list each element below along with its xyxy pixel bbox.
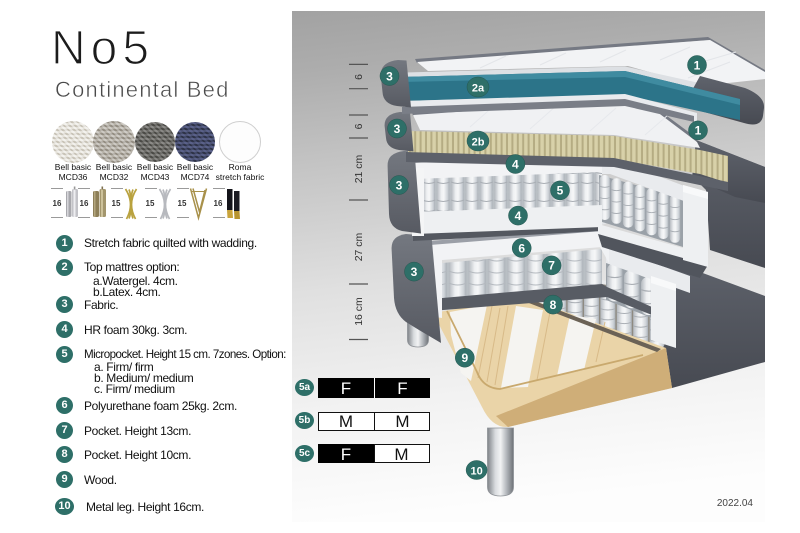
svg-text:6: 6: [353, 123, 365, 129]
svg-text:16 cm: 16 cm: [353, 297, 365, 326]
svg-text:15: 15: [146, 199, 155, 208]
svg-text:2a: 2a: [472, 82, 485, 94]
svg-text:2b: 2b: [472, 136, 485, 148]
svg-text:9: 9: [461, 351, 468, 365]
svg-text:16: 16: [53, 199, 62, 208]
svg-text:3: 3: [411, 265, 418, 279]
svg-text:16: 16: [80, 199, 89, 208]
svg-text:5: 5: [557, 184, 564, 198]
svg-text:4: 4: [512, 157, 519, 171]
svg-text:3: 3: [394, 122, 401, 136]
svg-text:1: 1: [695, 124, 702, 138]
svg-text:7: 7: [548, 259, 555, 273]
svg-text:21 cm: 21 cm: [353, 154, 365, 183]
svg-text:8: 8: [550, 298, 557, 312]
svg-text:27 cm: 27 cm: [353, 232, 365, 261]
svg-text:3: 3: [396, 178, 403, 192]
svg-text:15: 15: [112, 199, 121, 208]
svg-text:4: 4: [515, 209, 522, 223]
svg-text:2022.04: 2022.04: [717, 498, 754, 509]
svg-text:3: 3: [386, 69, 393, 83]
svg-text:16: 16: [214, 199, 223, 208]
svg-text:10: 10: [470, 465, 482, 477]
svg-text:6: 6: [518, 241, 525, 255]
svg-text:15: 15: [178, 199, 187, 208]
svg-text:6: 6: [353, 74, 365, 80]
svg-text:1: 1: [694, 58, 701, 72]
